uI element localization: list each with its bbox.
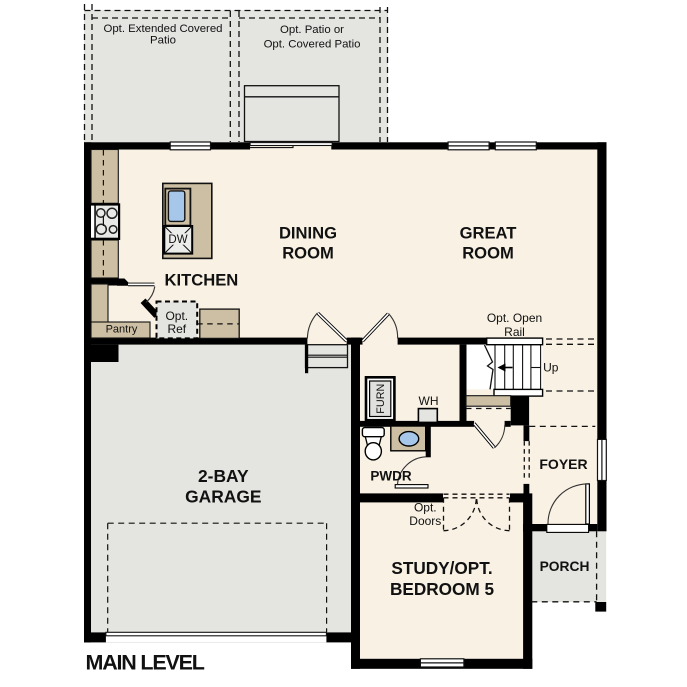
svg-text:DINING: DINING bbox=[279, 223, 337, 242]
svg-text:Opt.: Opt. bbox=[414, 500, 437, 514]
svg-text:Rail: Rail bbox=[504, 325, 525, 339]
svg-text:MAIN LEVEL: MAIN LEVEL bbox=[86, 651, 205, 675]
svg-text:Up: Up bbox=[543, 361, 559, 375]
svg-text:Ref: Ref bbox=[167, 322, 186, 336]
svg-text:BEDROOM 5: BEDROOM 5 bbox=[390, 579, 495, 599]
svg-text:GARAGE: GARAGE bbox=[185, 486, 261, 506]
svg-text:Opt.: Opt. bbox=[165, 309, 188, 323]
svg-text:FOYER: FOYER bbox=[539, 456, 587, 472]
svg-text:PORCH: PORCH bbox=[540, 559, 590, 574]
svg-text:Patio: Patio bbox=[150, 34, 176, 46]
svg-text:WH: WH bbox=[419, 394, 439, 408]
svg-text:KITCHEN: KITCHEN bbox=[165, 271, 239, 290]
svg-text:DW: DW bbox=[168, 234, 187, 246]
svg-text:Opt. Extended Covered: Opt. Extended Covered bbox=[103, 23, 222, 35]
svg-text:Doors: Doors bbox=[409, 514, 441, 528]
svg-text:PWDR: PWDR bbox=[370, 469, 411, 484]
svg-text:Opt. Patio or: Opt. Patio or bbox=[280, 24, 344, 36]
svg-text:Pantry: Pantry bbox=[106, 323, 138, 335]
svg-text:Opt. Covered Patio: Opt. Covered Patio bbox=[264, 38, 361, 50]
svg-text:ROOM: ROOM bbox=[462, 243, 514, 262]
svg-text:GREAT: GREAT bbox=[460, 223, 517, 242]
svg-text:ROOM: ROOM bbox=[282, 243, 334, 262]
svg-text:STUDY/OPT.: STUDY/OPT. bbox=[391, 558, 492, 578]
svg-text:2-BAY: 2-BAY bbox=[198, 466, 249, 486]
svg-text:Opt. Open: Opt. Open bbox=[487, 311, 542, 325]
svg-text:FURN: FURN bbox=[375, 384, 387, 414]
